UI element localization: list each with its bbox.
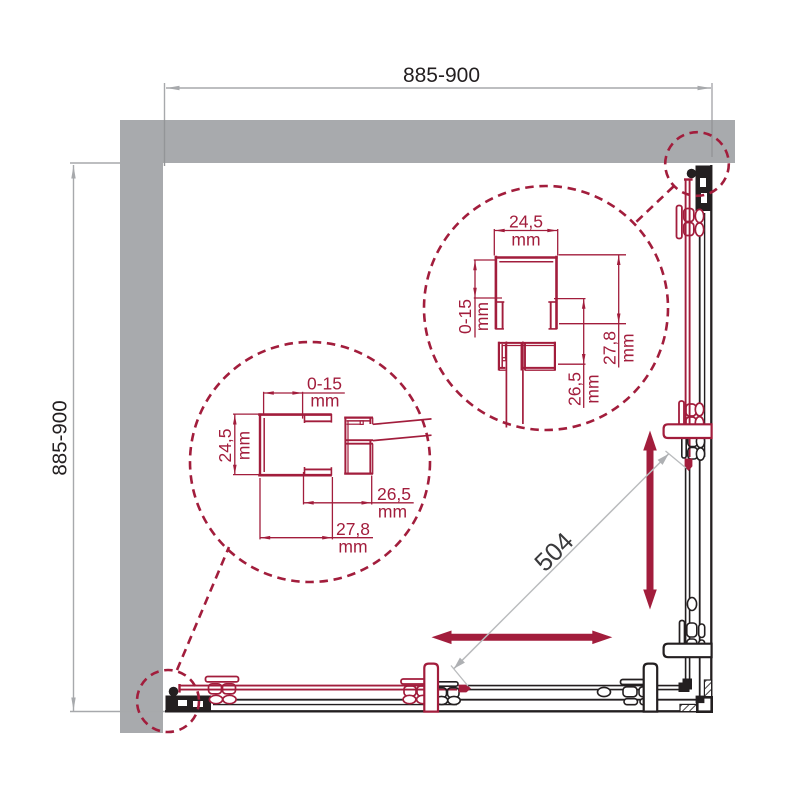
- svg-text:mm: mm: [310, 391, 339, 411]
- svg-text:mm: mm: [582, 374, 602, 403]
- svg-text:mm: mm: [511, 229, 540, 249]
- svg-text:mm: mm: [378, 501, 407, 521]
- svg-text:mm: mm: [234, 431, 254, 460]
- svg-text:mm: mm: [617, 333, 637, 362]
- svg-text:885-900: 885-900: [49, 400, 72, 475]
- svg-text:885-900: 885-900: [403, 64, 480, 87]
- svg-text:mm: mm: [472, 302, 492, 331]
- svg-text:mm: mm: [338, 536, 367, 556]
- svg-text:24,5: 24,5: [215, 428, 235, 462]
